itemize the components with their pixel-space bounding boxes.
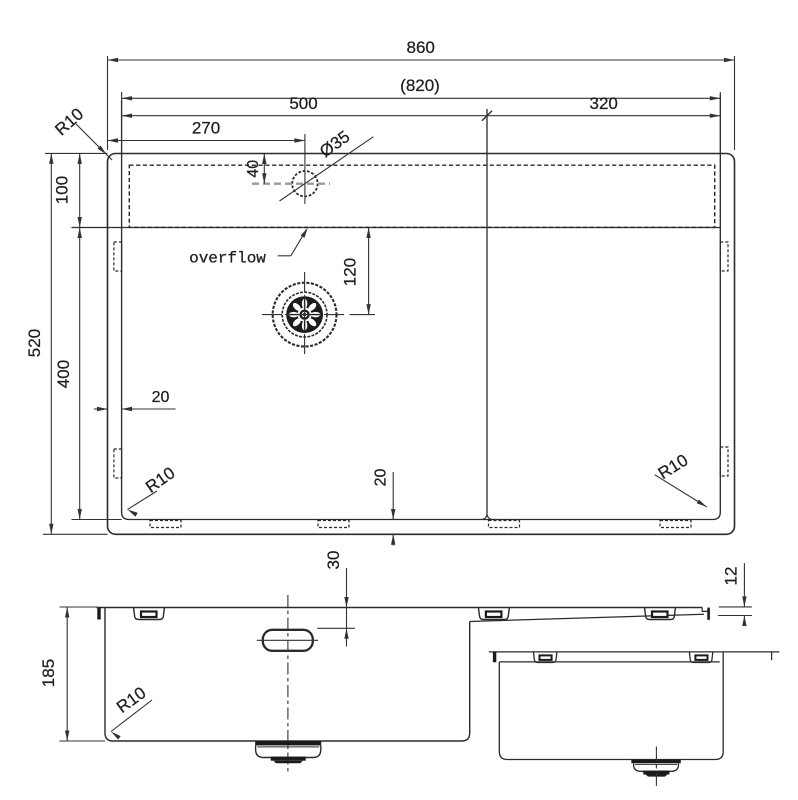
svg-text:Ø35: Ø35 xyxy=(316,127,353,161)
svg-text:30: 30 xyxy=(324,551,343,570)
svg-text:overflow: overflow xyxy=(189,250,266,268)
svg-text:270: 270 xyxy=(192,119,220,138)
svg-text:R10: R10 xyxy=(142,463,178,496)
svg-text:320: 320 xyxy=(590,94,618,113)
svg-text:100: 100 xyxy=(53,176,72,204)
svg-text:500: 500 xyxy=(289,94,317,113)
svg-text:R10: R10 xyxy=(113,683,149,717)
svg-text:40: 40 xyxy=(245,160,262,178)
svg-text:20: 20 xyxy=(373,469,390,487)
svg-text:185: 185 xyxy=(39,659,58,687)
svg-text:860: 860 xyxy=(407,38,435,57)
svg-text:120: 120 xyxy=(341,258,360,286)
svg-text:400: 400 xyxy=(54,360,73,388)
svg-text:12: 12 xyxy=(722,567,741,586)
svg-text:520: 520 xyxy=(25,329,44,357)
svg-text:(820): (820) xyxy=(400,76,440,95)
svg-text:R10: R10 xyxy=(51,104,87,139)
svg-text:20: 20 xyxy=(152,389,170,406)
